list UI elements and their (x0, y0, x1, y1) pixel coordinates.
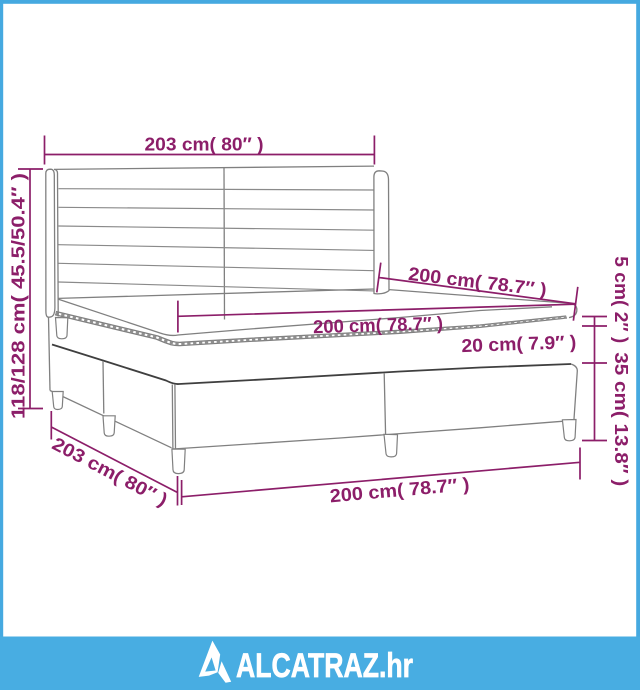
svg-text:203 cm( 80″ ): 203 cm( 80″ ) (145, 134, 264, 155)
svg-text:118/128 cm( 45.5/50.4″ ): 118/128 cm( 45.5/50.4″ ) (7, 173, 28, 419)
svg-text:ALCATRAZ.hr: ALCATRAZ.hr (236, 647, 413, 685)
svg-text:5 cm( 2″ ): 5 cm( 2″ ) (611, 256, 632, 343)
svg-text:200 cm( 78.7″ ): 200 cm( 78.7″ ) (313, 312, 444, 337)
svg-text:20 cm( 7.9″ ): 20 cm( 7.9″ ) (461, 331, 577, 356)
svg-text:35 cm( 13.8″ ): 35 cm( 13.8″ ) (611, 352, 632, 486)
